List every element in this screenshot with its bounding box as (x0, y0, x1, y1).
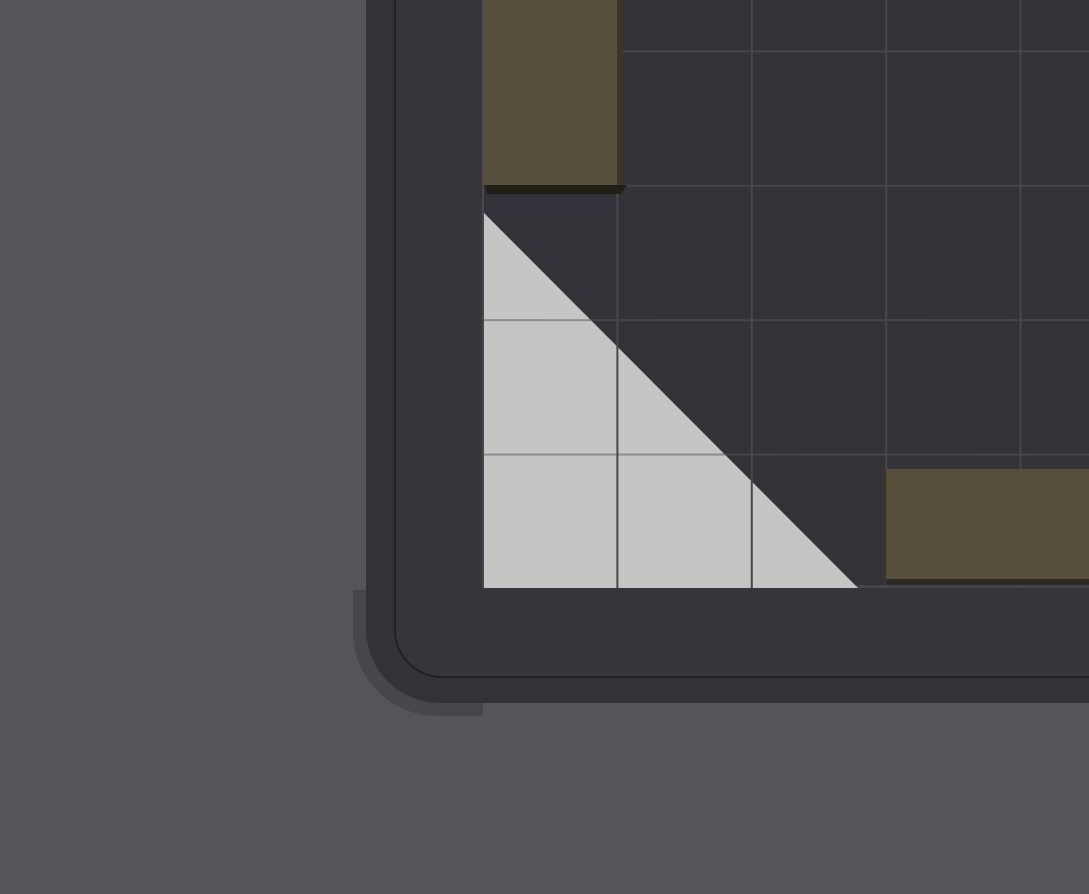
piece-horizontal-block[interactable] (883, 469, 1089, 579)
page-background (0, 0, 1089, 894)
piece-triangle[interactable] (483, 212, 858, 588)
piece-vertical-block-shadow (484, 185, 627, 194)
piece-horizontal-block-shadow (886, 579, 1089, 585)
play-area-grid[interactable] (482, 0, 1089, 588)
piece-vertical-block[interactable] (483, 0, 623, 185)
